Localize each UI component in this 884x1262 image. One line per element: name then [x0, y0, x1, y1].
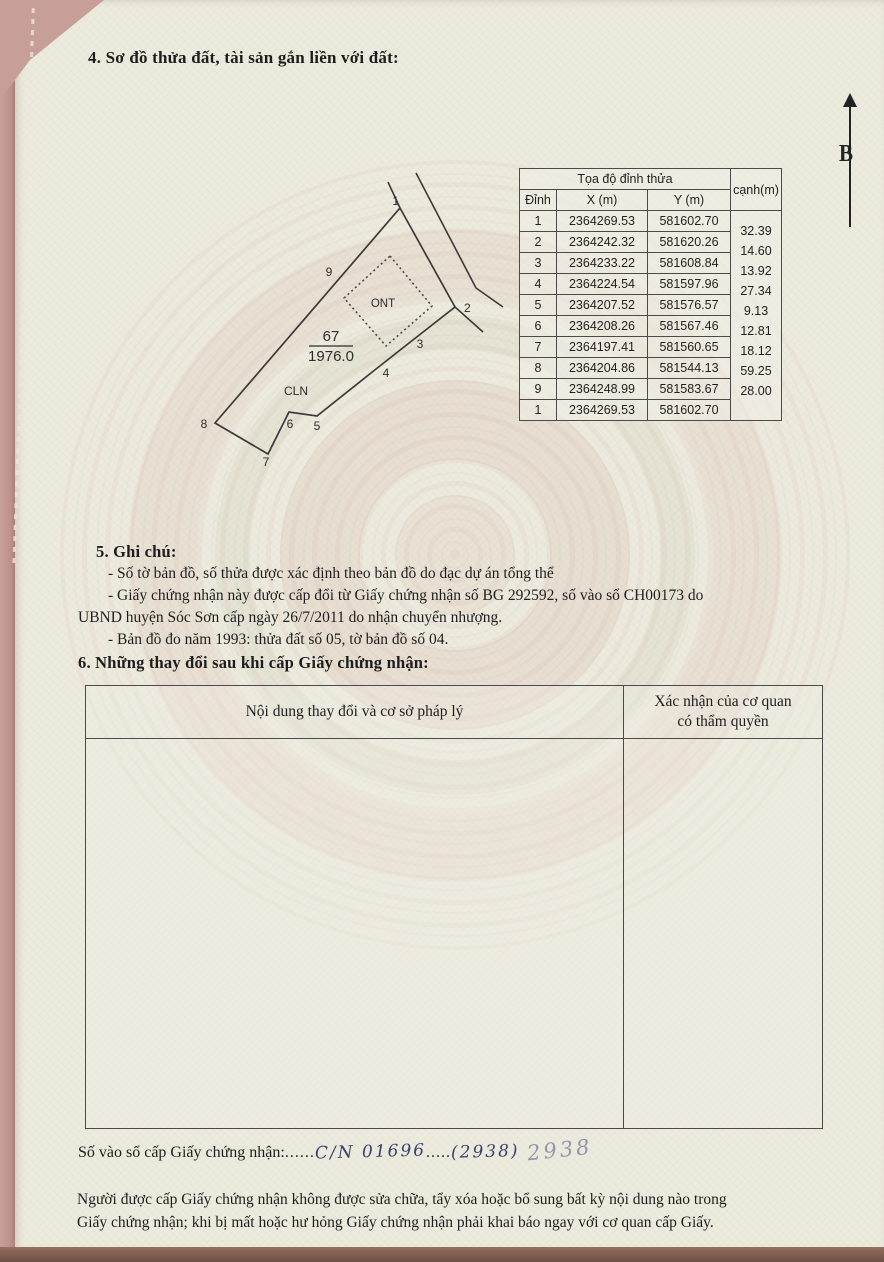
note-line: - Giấy chứng nhận này được cấp đổi từ Gi… [78, 585, 838, 607]
north-arrow-head [843, 93, 857, 107]
cell-x: 2364242.32 [557, 232, 648, 253]
dotted-leader: ...... [285, 1144, 315, 1161]
cell-x: 2364233.22 [557, 253, 648, 274]
cell-dinh: 9 [520, 379, 557, 400]
coordinate-table: Tọa độ đỉnh thửa cạnh(m) Đỉnh X (m) Y (m… [519, 168, 782, 421]
section4-title: 4. Sơ đồ thửa đất, tài sản gắn liền với … [88, 48, 399, 68]
cell-dinh: 2 [520, 232, 557, 253]
cell-y: 581602.70 [648, 400, 731, 421]
certificate-page: 4. Sơ đồ thửa đất, tài sản gắn liền với … [13, 0, 884, 1262]
changes-col1-header: Nội dung thay đổi và cơ sở pháp lý [86, 686, 623, 739]
cell-x: 2364269.53 [557, 211, 648, 232]
parcel-number-label: 67 [323, 328, 340, 345]
table-row: 1 2364269.53 581602.70 32.39 14.60 13.92… [520, 211, 782, 232]
notice-line: Giấy chứng nhận; khi bị mất hoặc hư hỏng… [77, 1211, 833, 1234]
cell-y: 581583.67 [648, 379, 731, 400]
note-line: UBND huyện Sóc Sơn cấp ngày 26/7/2011 do… [78, 607, 838, 629]
canh-value: 14.60 [731, 241, 781, 261]
cell-x: 2364197.41 [557, 337, 648, 358]
cell-x: 2364269.53 [557, 400, 648, 421]
parcel-diagram: 1 2 3 4 5 6 7 8 9 ONT CLN 67 1976.0 [163, 155, 533, 485]
cell-y: 581544.13 [648, 358, 731, 379]
cell-dinh: 3 [520, 253, 557, 274]
cell-dinh: 7 [520, 337, 557, 358]
cell-dinh: 8 [520, 358, 557, 379]
cell-x: 2364207.52 [557, 295, 648, 316]
coord-table-title: Tọa độ đỉnh thửa [520, 169, 731, 190]
north-label: B [839, 139, 853, 168]
cell-y: 581597.96 [648, 274, 731, 295]
registry-number-label: Số vào sổ cấp Giấy chứng nhận: [78, 1144, 285, 1161]
note-line: - Số tờ bản đồ, số thửa được xác định th… [78, 563, 838, 585]
canh-value: 13.92 [731, 261, 781, 281]
col-header-x: X (m) [557, 190, 648, 211]
footer-notice: Người được cấp Giấy chứng nhận không đượ… [77, 1188, 833, 1234]
dotted-leader: ..... [426, 1144, 451, 1161]
section5-notes: 5. Ghi chú: - Số tờ bản đồ, số thửa được… [78, 541, 838, 651]
cell-x: 2364224.54 [557, 274, 648, 295]
note-line: - Bản đồ đo năm 1993: thửa đất số 05, tờ… [78, 629, 838, 651]
handwritten-registry-number: C/N 01696 [315, 1141, 427, 1164]
canh-value: 9.13 [731, 301, 781, 321]
section6-title: 6. Những thay đổi sau khi cấp Giấy chứng… [78, 653, 429, 673]
column-divider [623, 686, 624, 1128]
road-line [416, 173, 503, 307]
vertex-label-3: 3 [417, 337, 424, 351]
vertex-label-7: 7 [263, 455, 270, 469]
vertex-label-2: 2 [464, 301, 471, 315]
vertex-label-4: 4 [383, 366, 390, 380]
col-header-dinh: Đỉnh [520, 190, 557, 211]
changes-col2-header: Xác nhận của cơ quan có thẩm quyền [624, 686, 822, 739]
cell-dinh: 5 [520, 295, 557, 316]
vertex-label-5: 5 [314, 419, 321, 433]
cell-y: 581567.46 [648, 316, 731, 337]
cell-x: 2364208.26 [557, 316, 648, 337]
section5-title: 5. Ghi chú: [78, 541, 838, 563]
cell-y: 581576.57 [648, 295, 731, 316]
cell-dinh: 4 [520, 274, 557, 295]
cell-dinh: 1 [520, 211, 557, 232]
vertex-label-1: 1 [392, 194, 399, 208]
cell-y: 581602.70 [648, 211, 731, 232]
cell-dinh: 6 [520, 316, 557, 337]
canh-values: 32.39 14.60 13.92 27.34 9.13 12.81 18.12… [731, 211, 781, 401]
changes-col2-line2: có thẩm quyền [677, 712, 768, 732]
col-header-y: Y (m) [648, 190, 731, 211]
notice-line: Người được cấp Giấy chứng nhận không đượ… [77, 1188, 833, 1211]
registry-number-line: Số vào sổ cấp Giấy chứng nhận:......C/N … [78, 1138, 593, 1162]
col-header-canh: cạnh(m) [731, 169, 782, 211]
table-row: Tọa độ đỉnh thửa cạnh(m) [520, 169, 782, 190]
cell-x: 2364204.86 [557, 358, 648, 379]
changes-table: Nội dung thay đổi và cơ sở pháp lý Xác n… [85, 685, 823, 1129]
cln-zone-label: CLN [284, 384, 308, 398]
vertex-label-6: 6 [287, 417, 294, 431]
table-surface-shadow [0, 1247, 884, 1262]
canh-value: 18.12 [731, 341, 781, 361]
vertex-label-9: 9 [326, 265, 333, 279]
vertex-label-8: 8 [201, 417, 208, 431]
changes-col2-line1: Xác nhận của cơ quan [654, 692, 791, 712]
canh-value: 59.25 [731, 361, 781, 381]
pencil-annotation: 2938 [526, 1135, 594, 1166]
cell-dinh: 1 [520, 400, 557, 421]
canh-column: 32.39 14.60 13.92 27.34 9.13 12.81 18.12… [731, 211, 782, 421]
ont-zone-label: ONT [371, 298, 395, 310]
canh-value: 28.00 [731, 381, 781, 401]
cell-y: 581560.65 [648, 337, 731, 358]
canh-value: 32.39 [731, 221, 781, 241]
canh-value: 27.34 [731, 281, 781, 301]
north-arrow: B [835, 93, 865, 227]
cell-y: 581608.84 [648, 253, 731, 274]
cell-x: 2364248.99 [557, 379, 648, 400]
cell-y: 581620.26 [648, 232, 731, 253]
handwritten-paren-number: (2938) [451, 1141, 520, 1163]
canh-value: 12.81 [731, 321, 781, 341]
fabric-background-left [0, 0, 15, 1262]
parcel-area-label: 1976.0 [308, 348, 354, 365]
